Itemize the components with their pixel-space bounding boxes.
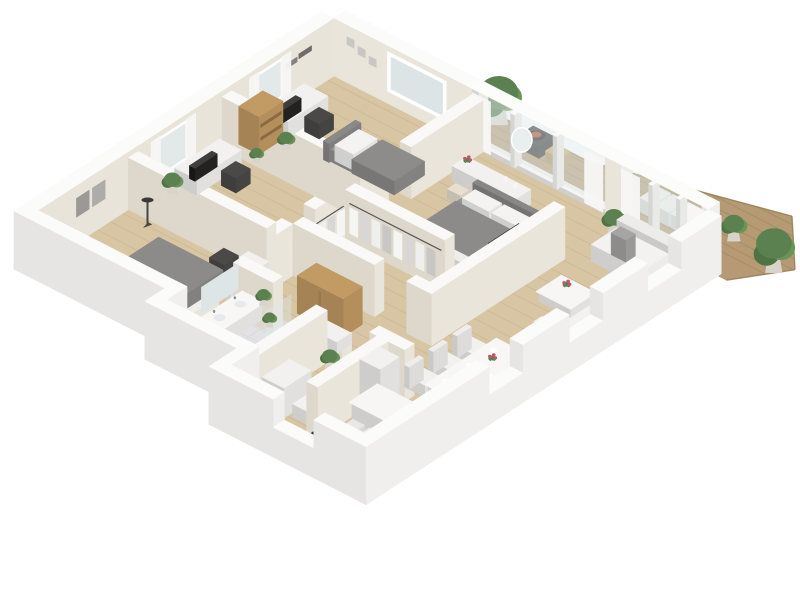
closet-hangers-north-item-2 [372, 219, 380, 249]
bathroom-sink-2 [214, 314, 226, 321]
dining-centerpiece-1-bloom-1 [492, 353, 496, 356]
dining-centerpiece-1-bloom-0 [488, 355, 492, 358]
master-glass-mullion-3-face-sw [553, 135, 557, 190]
coffee-table-flowers-bloom-0 [562, 281, 566, 284]
wall-closet-hall-a-face-se [374, 259, 384, 317]
coffee-table-flowers-bloom-1 [566, 280, 570, 283]
coffee-table-flowers-vase [565, 287, 568, 290]
telescope-stand [147, 201, 149, 226]
closet-hangers-west-item-0 [337, 209, 344, 240]
dining-plate-1 [490, 348, 498, 353]
console-lamp-1 [503, 176, 508, 182]
closet-hangers-north-item-6 [416, 241, 424, 271]
dining-chair-w2-back-face-sw [429, 349, 434, 373]
bathroom-sink-1 [234, 301, 246, 308]
se-wall-d-face-sw [353, 440, 366, 505]
study-plant-2-leaf-3 [251, 148, 263, 158]
office-bed-headboard-face-sw [323, 141, 329, 163]
telescope-tube [142, 197, 154, 202]
vanity-mirror [512, 128, 531, 151]
console-flowers-bloom-0 [463, 157, 467, 160]
dining-centerpiece-1-bloom-2 [493, 356, 497, 359]
small-room-plant-leaf-3 [322, 349, 338, 362]
deck-shrub-2-leaf-3 [756, 228, 792, 258]
dining-chair-w1-back-face-sw [453, 334, 458, 358]
wall-closet-hall-b-face-se [431, 288, 441, 346]
bathroom-faucet-2 [213, 310, 216, 313]
ne-curtain-2 [585, 150, 603, 212]
floor-plan-3d-render [0, 0, 800, 613]
closet-hangers-north-item-1 [361, 213, 369, 243]
coffee-table-flowers-bloom-2 [568, 283, 572, 286]
closet-hangers-north-item-7 [427, 247, 435, 277]
dining-centerpiece-1-vase [491, 360, 494, 363]
closet-hangers-north-item-5 [405, 236, 413, 266]
office-floor-plant-leaf-3 [279, 132, 293, 144]
hall-plant-leaf-3 [257, 289, 270, 300]
closet-hangers-north-item-3 [383, 224, 391, 254]
bathroom-faucet-1 [234, 296, 237, 299]
console-lamp-2 [513, 183, 518, 189]
closet-hangers-north-item-4 [394, 230, 402, 260]
closet-hangers-north-item-0 [350, 207, 358, 237]
floor-plan-page [0, 0, 800, 613]
dining-chair-w3-back-face-sw [405, 365, 410, 389]
console-flowers-vase [466, 162, 469, 165]
study-plant-1-leaf-3 [164, 172, 181, 186]
deck-shrub-1-leaf-3 [723, 215, 744, 233]
master-glass-mullion-3-face-se [557, 132, 564, 190]
bathroom-plant-leaf-3 [264, 312, 276, 322]
console-flowers-bloom-2 [469, 158, 473, 161]
console-flowers-bloom-1 [467, 155, 471, 158]
